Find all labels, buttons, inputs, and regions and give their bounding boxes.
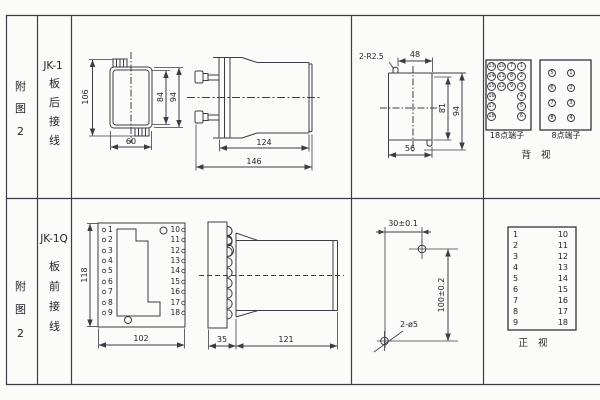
terminal-18pt: 3 (517, 82, 526, 91)
table-num: 15 (544, 285, 568, 295)
table-num: 16 (544, 296, 568, 306)
terminal-18pt: 11 (497, 72, 506, 81)
terminal-18pt: 12 (497, 82, 506, 91)
dim-124: 124 (248, 138, 280, 148)
fig-label-char: 2 (13, 126, 28, 138)
fig-label-char: 图 (13, 304, 28, 316)
table-num: 5 (513, 274, 527, 284)
wiring-label-char: 线 (47, 321, 62, 333)
terminal-8pt: 8 (548, 114, 556, 122)
model-label-jk1: JK-1 (38, 60, 68, 72)
terminal-18pt: 9 (507, 82, 516, 91)
fv-terminal: 1 (108, 225, 118, 235)
wiring-label-char: 板 (47, 78, 62, 90)
fig-label-char: 图 (13, 103, 28, 115)
fv-terminal: 16 (166, 287, 180, 297)
dim-106: 106 (81, 86, 91, 108)
table-num: 12 (544, 252, 568, 262)
dim-118: 118 (80, 264, 90, 286)
dim-48: 48 (399, 50, 431, 60)
wiring-label-char: 前 (47, 281, 62, 293)
dim-100: 100±0.2 (437, 273, 447, 317)
table-num: 14 (544, 274, 568, 284)
dim-146: 146 (238, 157, 270, 167)
table-num: 1 (513, 230, 527, 240)
jk1q-side-view-drawing (199, 222, 344, 350)
table-num: 18 (544, 318, 568, 328)
table-num: 7 (513, 296, 527, 306)
terminal-18pt: 8 (507, 72, 516, 81)
fv-terminal: 12 (166, 246, 180, 256)
dim-81: 81 (438, 97, 448, 119)
dim-94: 94 (169, 86, 179, 108)
dim-2-r2-5: 2-R2.5 (359, 52, 393, 62)
dim-56: 56 (394, 144, 426, 154)
fv-terminal: 9 (108, 308, 118, 318)
fv-terminal: 8 (108, 298, 118, 308)
fv-terminal: 7 (108, 287, 118, 297)
table-num: 11 (544, 241, 568, 251)
terminal-18pt: 17 (487, 102, 496, 111)
terminal-18pt: 1 (517, 62, 526, 71)
fv-terminal: 11 (166, 235, 180, 245)
terminal-8pt: 1 (567, 69, 575, 77)
fig-label-char: 附 (13, 281, 28, 293)
dim-30: 30±0.1 (381, 219, 425, 229)
terminal-18pt: 13 (487, 62, 496, 71)
terminal-8pt-label: 8点端子 (542, 131, 590, 141)
terminal-8pt: 3 (567, 99, 575, 107)
terminal-18pt: 18 (487, 112, 496, 121)
dim-94-cutout: 94 (452, 100, 462, 122)
jk1-side-view-drawing (187, 58, 320, 171)
table-num: 6 (513, 285, 527, 295)
fv-terminal: 6 (108, 277, 118, 287)
terminal-8pt: 2 (567, 84, 575, 92)
terminal-18pt: 5 (517, 102, 526, 111)
table-num: 8 (513, 307, 527, 317)
fig-label-char: 2 (13, 328, 28, 340)
model-label-jk1q: JK-1Q (36, 233, 72, 245)
fv-terminal: 17 (166, 298, 180, 308)
fv-terminal: 18 (166, 308, 180, 318)
fv-terminal: 4 (108, 256, 118, 266)
dim-60: 60 (115, 137, 147, 147)
table-num: 4 (513, 263, 527, 273)
fv-terminal: 10 (166, 225, 180, 235)
fv-terminal: 14 (166, 266, 180, 276)
wiring-label-char: 线 (47, 135, 62, 147)
terminal-8pt: 5 (548, 69, 556, 77)
terminal-18pt: 4 (517, 92, 526, 101)
table-num: 13 (544, 263, 568, 273)
fv-terminal: 5 (108, 266, 118, 276)
terminal-18pt: 10 (497, 62, 506, 71)
dim-102: 102 (125, 334, 157, 344)
dim-121: 121 (270, 335, 302, 345)
fig-label-char: 附 (13, 81, 28, 93)
table-num: 2 (513, 241, 527, 251)
fv-terminal: 13 (166, 256, 180, 266)
dim-84: 84 (156, 86, 166, 108)
wiring-label-char: 板 (47, 261, 62, 273)
terminal-18pt: 7 (507, 62, 516, 71)
relay-dimension-sheet: 附 图 2 JK-1 板 后 接 线 附 图 2 JK-1Q 板 前 接 线 1… (0, 0, 600, 400)
wiring-label-char: 后 (47, 97, 62, 109)
front-view-label: 正 视 (507, 339, 559, 349)
wiring-label-char: 接 (47, 116, 62, 128)
terminal-8pt: 7 (548, 99, 556, 107)
wiring-label-char: 接 (47, 301, 62, 313)
fv-terminal: 3 (108, 246, 118, 256)
dim-2-d5: 2-ø5 (392, 320, 426, 330)
terminal-18pt: 16 (487, 92, 496, 101)
terminal-18pt: 15 (487, 82, 496, 91)
terminal-18pt-label: 18点端子 (482, 131, 532, 141)
fv-terminal: 2 (108, 235, 118, 245)
terminal-18pt: 2 (517, 72, 526, 81)
dim-35: 35 (206, 335, 238, 345)
table-num: 9 (513, 318, 527, 328)
terminal-18pt: 14 (487, 72, 496, 81)
terminal-18pt: 6 (517, 112, 526, 121)
table-num: 3 (513, 252, 527, 262)
table-num: 17 (544, 307, 568, 317)
terminal-8pt: 4 (567, 114, 575, 122)
table-num: 10 (544, 230, 568, 240)
fv-terminal: 15 (166, 277, 180, 287)
rear-view-label: 背 视 (510, 151, 562, 161)
terminal-8pt: 6 (548, 84, 556, 92)
